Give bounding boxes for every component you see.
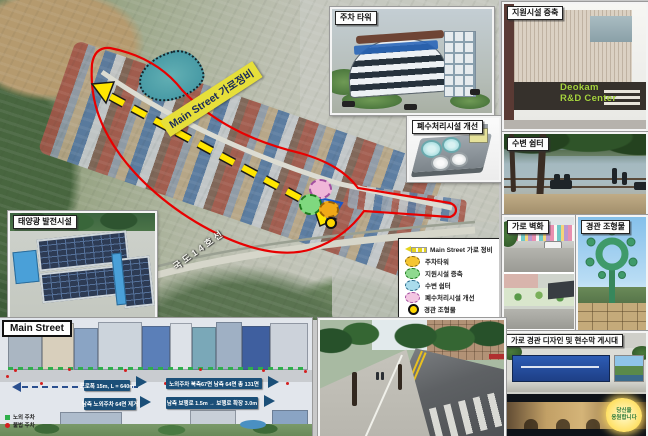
diagram-title: Main Street: [2, 320, 72, 337]
banner-photo: [504, 348, 646, 392]
deokam-photo: Deokam R&D Center: [504, 4, 646, 129]
banner-photos: 당신을 응원합니다: [504, 333, 646, 436]
bench: [634, 182, 646, 190]
diagram-label-before-bottom: 남측 노외주차 64면 제거: [84, 398, 136, 410]
arch-shadow: [556, 419, 570, 429]
callout-title: 가로 경관 디자인 및 현수막 게시대: [506, 334, 623, 347]
tree-trunk: [398, 364, 402, 390]
offstreet-parking-dashes: [8, 367, 304, 370]
building-block: [170, 323, 192, 370]
legend-row: 경관 조형물: [405, 303, 499, 315]
building-sign: Deokam R&D Center: [560, 83, 616, 105]
pedestrian: [376, 372, 379, 380]
blob-icon-cyan: [405, 280, 420, 291]
callout-title: 경관 조형물: [581, 220, 630, 234]
building-block: [142, 326, 170, 370]
diagram-label-after-top: 노외주차 북측67면 남측 64면 총 131면: [166, 378, 262, 389]
person-sitting: [564, 174, 570, 182]
callout-title: 폐수처리시설 개선: [412, 120, 483, 134]
arrow-right-icon: [268, 376, 279, 388]
legend-label: 경관 조형물: [424, 304, 456, 314]
callout-title: 태양광 발전시설: [13, 215, 77, 229]
legend-row: 노외 주차: [5, 413, 35, 421]
glow-flower-sign: 당신을 응원합니다: [606, 398, 642, 432]
legend-label: 노외 주차: [13, 413, 35, 421]
legend-row: 불법 주차: [5, 421, 35, 429]
callout-waterside: 수변 쉼터: [502, 132, 648, 216]
building-block: [192, 327, 216, 370]
deck: [504, 194, 646, 214]
building-block: [270, 323, 308, 370]
tank-white: [431, 155, 450, 171]
sign-line: R&D Center: [560, 94, 616, 105]
banner-board: [512, 355, 610, 382]
legend-row: 폐수처리시설 개선: [405, 291, 499, 303]
glow-text: 당신을: [616, 408, 631, 415]
main-street-arrow: [106, 94, 322, 210]
blob-icon-pink: [405, 292, 420, 303]
road: [504, 309, 574, 329]
arch-shadow: [524, 419, 538, 429]
callout-solar: 태양광 발전시설: [8, 211, 157, 321]
callout-title: 수변 쉼터: [507, 137, 549, 151]
legend-label: 지원시설 증축: [425, 268, 463, 278]
mural-photos: [504, 217, 574, 331]
callout-title: 가로 벽화: [507, 220, 549, 234]
legend-label: Main Street 가로 정비: [430, 244, 493, 254]
person-sitting: [554, 174, 560, 182]
blob-icon-yellow: [405, 256, 420, 267]
legend-label: 폐수처리시설 개선: [425, 292, 475, 302]
callout-wastewater: 폐수처리시설 개선: [407, 116, 501, 182]
ring-icon: [408, 304, 419, 315]
callout-support-facility: Deokam R&D Center 지원시설 증축: [502, 2, 648, 131]
person-standing: [612, 168, 617, 184]
marker-parking-tower: [319, 201, 339, 218]
pond: [240, 420, 266, 429]
sculpture-photo: [578, 217, 646, 331]
car: [470, 89, 480, 95]
callout-banner: 당신을 응원합니다 가로 경관 디자인 및 현수막 게시대: [502, 331, 648, 436]
glow-text: 응원합니다: [611, 415, 636, 422]
blue-roof-building: [12, 250, 39, 284]
tree-trunk: [352, 372, 357, 406]
red-dot-icon: [5, 423, 10, 428]
building-block: [98, 322, 142, 370]
car: [342, 101, 355, 107]
arch-shadow: [586, 419, 600, 429]
street-photo: [318, 318, 506, 436]
arrow-right-icon: [140, 396, 151, 408]
diagram-label-after-bottom: 남측 보행로 1.5m → 보행로 확장 3.0m: [166, 397, 258, 409]
person-standing: [622, 172, 627, 185]
glass-band: [590, 16, 632, 42]
building-block: [242, 326, 270, 370]
legend-row: 주차타워: [405, 255, 499, 267]
tank-white: [450, 152, 468, 167]
callout-mural: 가로 벽화: [502, 215, 576, 333]
diagram-label-before-top: 도로폭 15m, L = 640m: [84, 380, 130, 391]
callout-sculpture: 경관 조형물: [576, 215, 648, 333]
building-block: [216, 322, 242, 370]
street-band: [0, 370, 312, 382]
tank-cyan: [442, 137, 461, 153]
legend-row: Main Street 가로 정비: [405, 243, 499, 255]
arrow-right-icon: [264, 395, 275, 407]
building-block: [74, 328, 98, 370]
diagram-legend: 노외 주차 불법 주차: [5, 413, 35, 429]
landscape-poster: [614, 355, 644, 382]
callout-title: 주차 타워: [335, 11, 377, 25]
legend-row: 지원시설 증축: [405, 267, 499, 279]
pedestrian: [381, 372, 384, 380]
blob-icon-green: [405, 268, 420, 279]
road: [504, 248, 574, 272]
legend-label: 수변 쉼터: [425, 280, 451, 290]
main-street-diagram: 도로폭 15m, L = 640m 노외주차 북측67면 남측 64면 총 13…: [0, 318, 312, 436]
arrow-right-icon: [136, 376, 147, 388]
car: [404, 104, 417, 110]
ground: [504, 120, 646, 129]
legend-label: 불법 주차: [13, 421, 35, 429]
marker-sculpture: [325, 217, 337, 229]
mural-photo-bottom: [504, 274, 574, 329]
parking-tower-elevator: [444, 31, 476, 97]
legend-row: 수변 쉼터: [405, 279, 499, 291]
legend-label: 주차타워: [425, 256, 449, 266]
green-square-icon: [5, 415, 10, 420]
bus-shelter: [548, 281, 574, 300]
plan-poster: Main Street 가로정비 국도14호선 Main Street 가로 정…: [0, 0, 648, 436]
brick-wall: [504, 4, 514, 129]
dashed-arrow-icon: [405, 246, 425, 252]
map-legend: Main Street 가로 정비 주차타워 지원시설 증축 수변 쉼터 폐수처…: [398, 238, 499, 319]
callout-title: 지원시설 증축: [507, 6, 563, 20]
illegal-parking-dots: [14, 369, 17, 372]
night-wall-photo: 당신을 응원합니다: [504, 394, 646, 436]
callout-parking-tower: 주차 타워: [330, 7, 494, 115]
